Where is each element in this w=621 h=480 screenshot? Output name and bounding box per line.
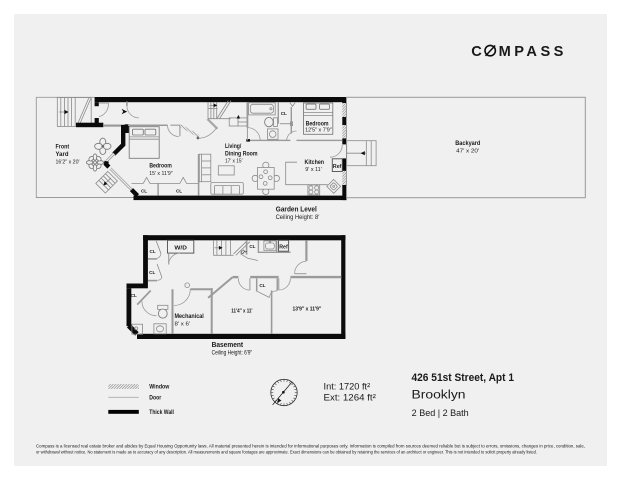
svg-text:Front: Front: [56, 143, 70, 150]
svg-text:CL: CL: [281, 111, 287, 116]
svg-text:Yard: Yard: [56, 151, 69, 158]
svg-text:Bedroom: Bedroom: [149, 162, 172, 169]
svg-text:Ceiling Height: 6′9″: Ceiling Height: 6′9″: [212, 349, 253, 356]
svg-text:CL: CL: [259, 283, 265, 288]
svg-text:Mechanical: Mechanical: [175, 313, 205, 320]
svg-text:CL: CL: [150, 249, 156, 254]
svg-text:Int: 1720 ft²: Int: 1720 ft²: [324, 381, 371, 392]
svg-text:12′5″ x 7′9″: 12′5″ x 7′9″: [305, 128, 332, 134]
svg-text:426 51st Street, Apt 1: 426 51st Street, Apt 1: [412, 372, 515, 384]
svg-text:CL: CL: [176, 188, 182, 193]
svg-text:Compass is a licensed real est: Compass is a licensed real estate broker…: [36, 444, 585, 450]
svg-text:8′ x 6′: 8′ x 6′: [175, 321, 191, 327]
svg-text:Ref: Ref: [279, 244, 288, 250]
svg-text:9′ x 11′: 9′ x 11′: [305, 167, 322, 173]
svg-text:Door: Door: [149, 394, 162, 401]
svg-text:Backyard: Backyard: [455, 140, 480, 147]
svg-text:MPASS: MPASS: [499, 44, 567, 60]
svg-text:Living/: Living/: [225, 143, 242, 150]
svg-text:Thick Wall: Thick Wall: [149, 409, 174, 416]
svg-text:2 Bed | 2 Bath: 2 Bed | 2 Bath: [412, 408, 469, 418]
svg-text:CL: CL: [249, 244, 255, 249]
svg-text:11′4″ x 11′: 11′4″ x 11′: [231, 308, 253, 314]
svg-text:Ext: 1264 ft²: Ext: 1264 ft²: [324, 391, 376, 402]
svg-text:CL: CL: [141, 188, 147, 193]
svg-text:Window: Window: [149, 384, 169, 391]
svg-text:47′ x 20′: 47′ x 20′: [456, 149, 479, 155]
svg-text:Kitchen: Kitchen: [305, 159, 325, 166]
svg-text:Ceiling Height: 8′: Ceiling Height: 8′: [276, 214, 320, 221]
svg-text:Ref: Ref: [333, 164, 342, 170]
svg-text:16′2″ x 20′: 16′2″ x 20′: [56, 160, 80, 166]
svg-text:CL: CL: [149, 270, 155, 275]
svg-text:W/D: W/D: [174, 246, 187, 252]
svg-text:Basement: Basement: [212, 340, 244, 349]
svg-text:13′9″ x 11′9″: 13′9″ x 11′9″: [293, 306, 322, 312]
svg-text:C: C: [471, 44, 485, 60]
svg-text:Bedroom: Bedroom: [306, 120, 329, 127]
svg-text:Dining Room: Dining Room: [225, 150, 258, 157]
svg-text:15′ x 11′9″: 15′ x 11′9″: [149, 171, 172, 177]
svg-text:or withdrawal without notice.: or withdrawal without notice. No stateme…: [36, 450, 537, 456]
svg-text:CL: CL: [131, 293, 137, 298]
svg-text:Garden Level: Garden Level: [276, 205, 317, 214]
svg-text:Brooklyn: Brooklyn: [412, 387, 466, 401]
svg-text:17′ x 15′: 17′ x 15′: [225, 158, 243, 164]
